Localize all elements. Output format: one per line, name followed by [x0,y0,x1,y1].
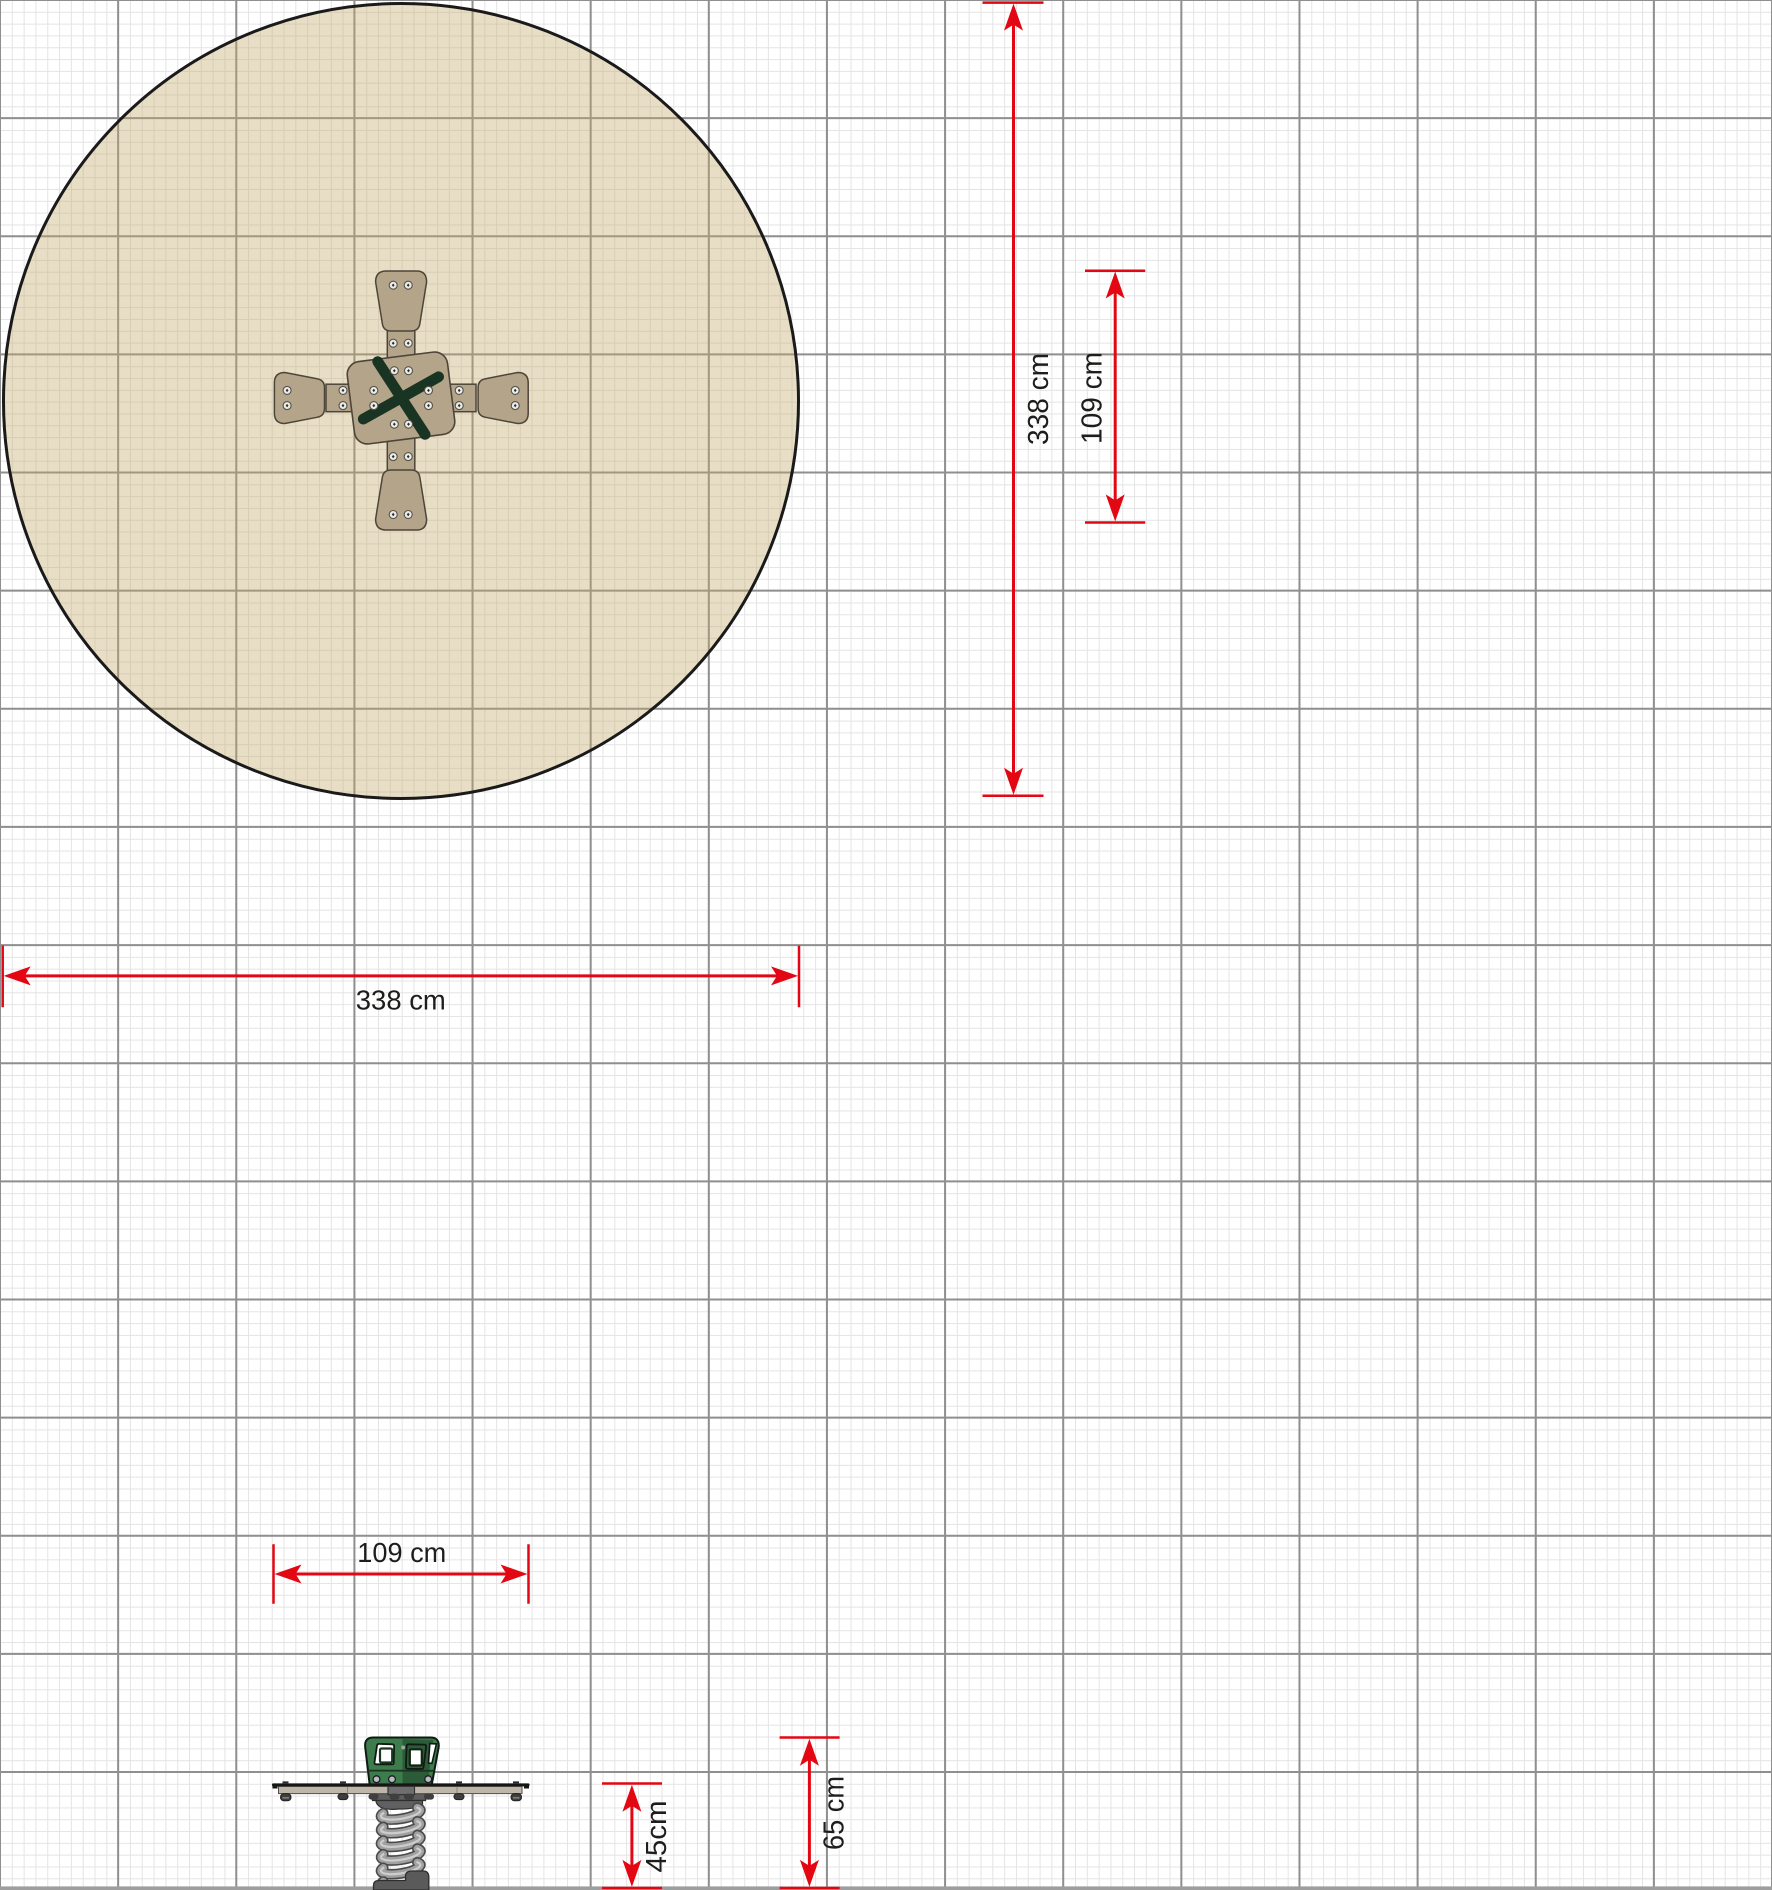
svg-text:65 cm: 65 cm [819,1776,851,1850]
svg-text:109 cm: 109 cm [357,1537,446,1568]
svg-text:45cm: 45cm [641,1801,673,1873]
svg-text:338 cm: 338 cm [356,985,446,1016]
svg-text:109 cm: 109 cm [1077,352,1109,444]
svg-text:338 cm: 338 cm [1023,353,1055,445]
